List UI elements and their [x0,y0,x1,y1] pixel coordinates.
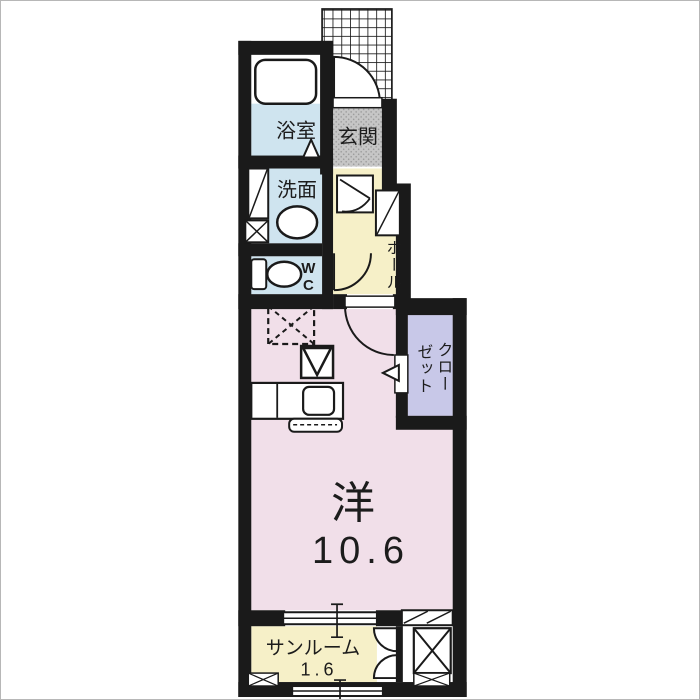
room-label-wc: WC [300,260,316,294]
floor-plan: 浴室 玄関 洗面 WC ホール クロー ゼット 洋 10.6 サンルーム 1.6 [0,0,700,700]
shutter-box-right [414,673,450,686]
hall-storage-icon [376,190,400,235]
wall-hall-left [322,169,333,310]
room-label-living: 洋 [331,481,375,527]
room-size-sunroom: 1.6 [300,661,337,680]
washbasin-icon [277,206,317,238]
floor-plan-drawing [1,1,699,699]
kitchen-sink-icon [303,387,334,415]
room-label-hall: ホール [383,240,400,291]
wall-left [238,41,251,697]
living-door-sill [345,296,395,307]
wall-top [238,41,333,55]
wall-living-bottom-left [238,610,285,626]
wall-wc-bottom [238,294,333,309]
room-label-closet-col2: ゼット [414,344,431,395]
hall-door-icon [337,176,373,213]
shutter-box-left [248,673,278,686]
entrance-sill [333,98,382,108]
room-size-living: 10.6 [312,532,410,572]
stove-icon [301,346,333,378]
wall-bath-entrance [320,41,333,175]
room-label-closet-col1: クロー [434,342,451,393]
sunroom-double-door-icon [374,628,397,678]
room-label-sunroom: サンルーム [266,639,360,659]
toilet-icon [251,259,301,289]
wall-wash-wc [238,243,322,256]
wall-living-bottom-mid [376,610,403,626]
room-label-bath: 浴室 [276,122,316,143]
wall-right [453,298,467,697]
wall-entrance-right [382,99,397,193]
bathtub-icon [255,60,316,104]
wall-closet-left-upper [396,310,408,357]
room-label-washroom: 洗面 [277,181,317,202]
duct-box-icon [245,220,268,242]
wall-closet-left-lower [396,391,408,418]
washer-space-icon [414,628,451,673]
window-high-right [402,610,453,625]
room-label-entrance: 玄関 [338,128,378,149]
